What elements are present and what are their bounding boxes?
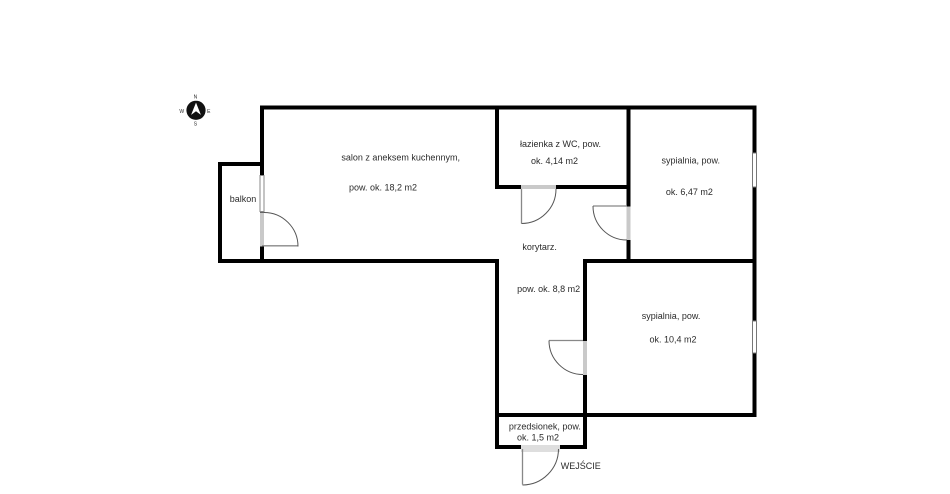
svg-text:łazienka z WC, pow.: łazienka z WC, pow. <box>520 139 601 149</box>
svg-text:sypialnia, pow.: sypialnia, pow. <box>642 311 701 321</box>
svg-text:pow. ok. 18,2 m2: pow. ok. 18,2 m2 <box>349 183 417 193</box>
svg-text:pow. ok. 8,8 m2: pow. ok. 8,8 m2 <box>517 284 580 294</box>
svg-text:salon z aneksem kuchennym,: salon z aneksem kuchennym, <box>341 153 460 163</box>
svg-text:przedsionek, pow.: przedsionek, pow. <box>509 421 581 431</box>
svg-text:WEJŚCIE: WEJŚCIE <box>561 460 601 471</box>
svg-text:ok. 6,47 m2: ok. 6,47 m2 <box>666 187 713 197</box>
svg-text:sypialnia, pow.: sypialnia, pow. <box>662 156 721 166</box>
svg-text:ok. 10,4 m2: ok. 10,4 m2 <box>650 335 697 345</box>
svg-text:korytarz.: korytarz. <box>522 242 557 252</box>
svg-text:ok. 1,5 m2: ok. 1,5 m2 <box>517 432 559 442</box>
svg-text:ok. 4,14 m2: ok. 4,14 m2 <box>531 156 578 166</box>
svg-text:balkon: balkon <box>230 194 257 204</box>
svg-text:N: N <box>194 95 198 101</box>
svg-text:W: W <box>179 109 184 115</box>
